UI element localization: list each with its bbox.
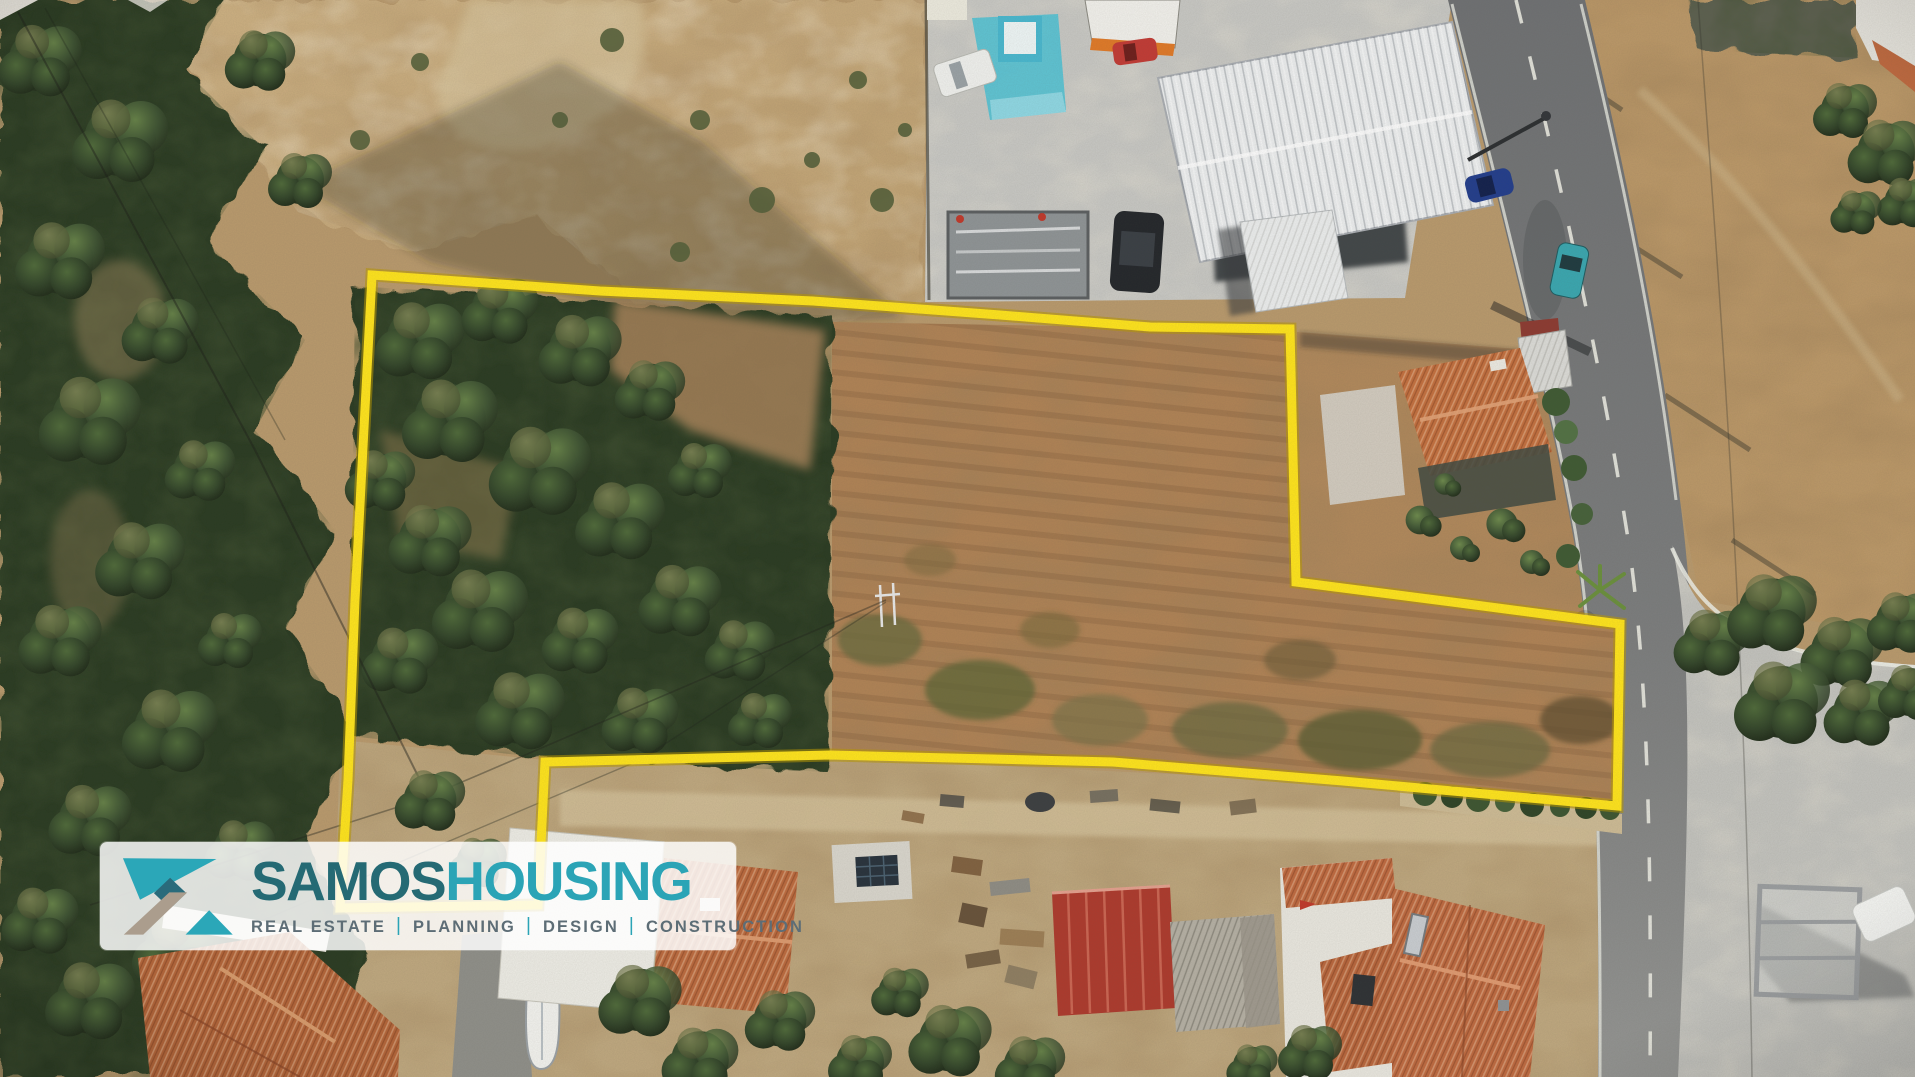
- tagline-separator: |: [396, 915, 403, 937]
- brand-secondary-text: HOUSING: [445, 854, 691, 909]
- brand-tagline: REAL ESTATE | PLANNING | DESIGN | CONSTR…: [251, 916, 804, 938]
- brand-primary-text: SAMOS: [251, 854, 445, 909]
- samos-housing-logo-icon: [114, 850, 236, 943]
- watermark-logo-panel: SAMOSHOUSING REAL ESTATE | PLANNING | DE…: [100, 842, 736, 950]
- brand-wordmark: SAMOSHOUSING: [251, 854, 804, 909]
- tagline-item: DESIGN: [543, 918, 619, 937]
- tagline-item: PLANNING: [413, 918, 516, 937]
- tagline-separator: |: [629, 915, 636, 937]
- tagline-item: CONSTRUCTION: [646, 918, 804, 937]
- tagline-separator: |: [526, 915, 533, 937]
- tagline-item: REAL ESTATE: [251, 918, 386, 937]
- aerial-photo: SAMOSHOUSING REAL ESTATE | PLANNING | DE…: [0, 0, 1915, 1077]
